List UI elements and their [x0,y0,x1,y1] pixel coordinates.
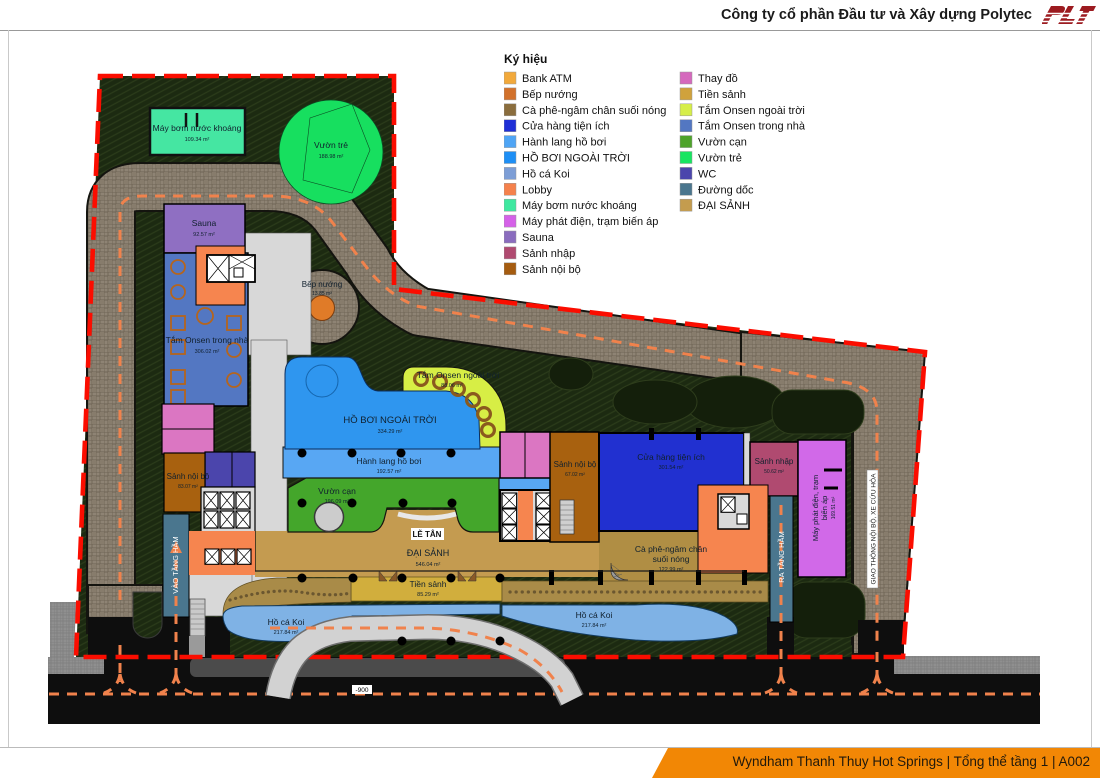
svg-text:Sảnh nội bộ: Sảnh nội bộ [554,460,597,469]
svg-text:192.57 m²: 192.57 m² [377,469,402,475]
svg-text:RA TẦNG HẦM: RA TẦNG HẦM [776,531,786,583]
svg-text:biến áp: biến áp [820,496,829,521]
svg-text:Vườn cạn: Vườn cạn [698,137,747,149]
svg-text:Tắm Onsen ngoài trời: Tắm Onsen ngoài trời [698,104,805,117]
svg-text:Máy phát điện, trạm biến áp: Máy phát điện, trạm biến áp [522,216,658,228]
svg-text:Máy bơm nước khoáng: Máy bơm nước khoáng [153,123,242,133]
svg-text:Tiền sảnh: Tiền sảnh [698,89,746,101]
svg-text:VÀO TẦNG HẦM: VÀO TẦNG HẦM [170,536,180,593]
svg-text:Hồ cá Koi: Hồ cá Koi [522,168,570,180]
svg-text:Sauna: Sauna [522,232,555,244]
svg-text:196.09 m²: 196.09 m² [325,499,350,505]
svg-text:Sauna: Sauna [192,218,217,228]
svg-text:109.34 m²: 109.34 m² [185,137,210,143]
svg-text:Tiền sảnh: Tiền sảnh [409,579,446,589]
svg-text:217.84 m²: 217.84 m² [582,623,607,629]
svg-text:301.54 m²: 301.54 m² [659,465,684,471]
svg-text:ĐẠI SẢNH: ĐẠI SẢNH [407,547,450,558]
svg-text:188.98 m²: 188.98 m² [319,154,344,160]
svg-text:Tắm Onsen trong nhà: Tắm Onsen trong nhà [698,120,806,133]
svg-text:Bếp nướng: Bếp nướng [302,280,342,289]
svg-text:334.29 m²: 334.29 m² [378,429,403,435]
svg-text:67.02 m²: 67.02 m² [565,472,585,478]
svg-text:HỒ BƠI NGOÀI TRỜI: HỒ BƠI NGOÀI TRỜI [343,414,436,426]
svg-text:85.29 m²: 85.29 m² [417,592,439,598]
svg-text:Vườn trẻ: Vườn trẻ [698,153,742,165]
svg-text:Hồ cá Koi: Hồ cá Koi [576,610,613,620]
svg-text:83.07 m²: 83.07 m² [178,484,198,490]
svg-text:Bank ATM: Bank ATM [522,73,572,85]
svg-text:546.04 m²: 546.04 m² [416,562,441,568]
svg-text:13.85 m²: 13.85 m² [312,291,332,297]
svg-text:GIAO THÔNG NỘI BỘ, XE CỨU HỎA: GIAO THÔNG NỘI BỘ, XE CỨU HỎA [869,473,878,585]
svg-text:-900: -900 [355,687,368,694]
svg-text:suối nóng: suối nóng [653,554,690,564]
svg-text:Sảnh nhập: Sảnh nhập [522,248,575,260]
svg-text:Máy bơm nước khoáng: Máy bơm nước khoáng [522,200,637,212]
svg-text:Cửa hàng tiện ích: Cửa hàng tiện ích [637,452,705,462]
svg-text:Đường dốc: Đường dốc [698,184,754,196]
svg-text:Bếp nướng: Bếp nướng [522,89,578,101]
svg-text:Máy phát điện, trạm: Máy phát điện, trạm [811,475,820,541]
svg-text:Cà phê-ngâm chân suối nóng: Cà phê-ngâm chân suối nóng [522,105,666,117]
svg-text:Sảnh nhập: Sảnh nhập [755,457,794,466]
svg-text:306.02 m²: 306.02 m² [195,349,220,355]
svg-text:50.62 m²: 50.62 m² [764,469,784,475]
svg-text:Hồ cá Koi: Hồ cá Koi [268,617,305,627]
svg-text:Vườn trẻ: Vườn trẻ [314,140,348,150]
svg-text:Sảnh nội bộ: Sảnh nội bộ [522,264,581,276]
svg-text:Cửa hàng tiện ích: Cửa hàng tiện ích [522,121,609,133]
svg-text:Hành lang hồ bơi: Hành lang hồ bơi [356,456,421,466]
svg-text:Tắm Onsen ngoài trời: Tắm Onsen ngoài trời [417,370,500,380]
svg-text:217.84 m²: 217.84 m² [274,630,299,636]
svg-text:169.51 m²: 169.51 m² [831,496,837,519]
svg-text:Hành lang hồ bơi: Hành lang hồ bơi [522,137,606,149]
svg-text:ĐẠI SẢNH: ĐẠI SẢNH [698,199,750,212]
svg-text:WC: WC [698,168,716,180]
svg-text:HỒ BƠI NGOÀI TRỜI: HỒ BƠI NGOÀI TRỜI [522,152,630,165]
svg-text:Vườn cạn: Vườn cạn [318,486,356,496]
svg-text:Lobby: Lobby [522,184,552,196]
svg-text:LỄ TÂN: LỄ TÂN [413,530,442,539]
svg-text:Cà phê-ngâm chân: Cà phê-ngâm chân [635,544,708,554]
svg-text:92.57 m²: 92.57 m² [193,232,215,238]
svg-text:88.06 m²: 88.06 m² [441,383,463,389]
svg-text:Sảnh nội bộ: Sảnh nội bộ [167,472,210,481]
svg-text:122.99 m²: 122.99 m² [659,567,684,573]
svg-text:Thay đồ: Thay đồ [698,73,738,85]
svg-text:Tắm Onsen trong nhà: Tắm Onsen trong nhà [166,335,249,345]
